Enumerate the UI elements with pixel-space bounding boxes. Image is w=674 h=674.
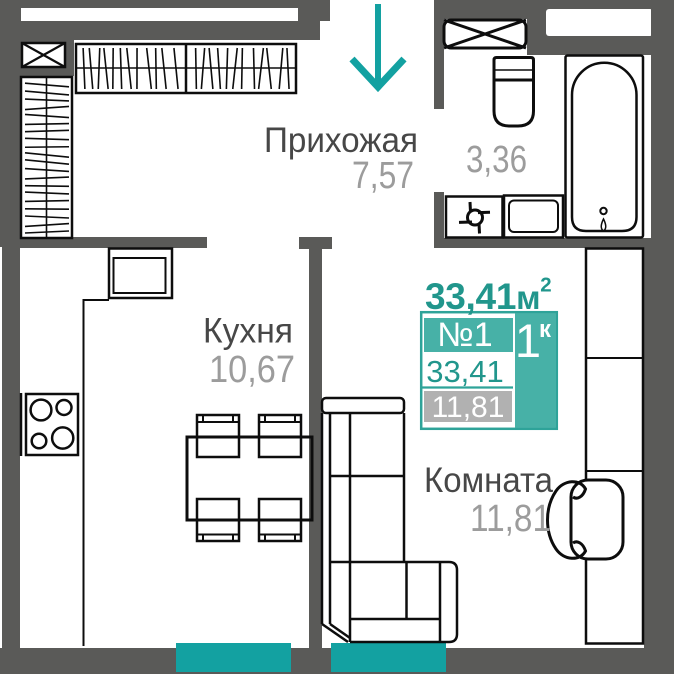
svg-text:1: 1 [515, 314, 541, 367]
svg-text:№1: №1 [437, 316, 492, 354]
svg-text:Комната: Комната [424, 461, 554, 500]
svg-text:33,41: 33,41 [426, 354, 504, 389]
svg-text:10,67: 10,67 [209, 349, 295, 391]
svg-text:33,41м2: 33,41м2 [425, 274, 551, 318]
svg-text:Кухня: Кухня [203, 312, 293, 351]
svg-text:11,81: 11,81 [432, 391, 505, 424]
svg-text:7,57: 7,57 [352, 155, 414, 197]
svg-text:11,81: 11,81 [470, 498, 551, 540]
svg-text:к: к [539, 316, 552, 343]
svg-text:3,36: 3,36 [466, 139, 527, 181]
